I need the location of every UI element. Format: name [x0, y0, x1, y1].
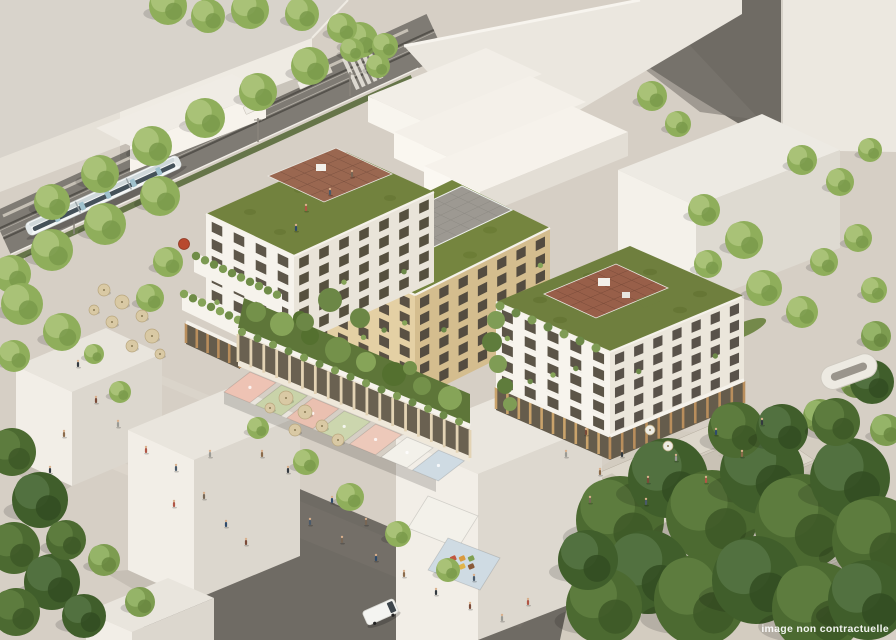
architectural-aerial-rendering: image non contractuelle [0, 0, 896, 640]
tree [0, 283, 43, 325]
aerial-render-canvas: image non contractuelle [0, 0, 896, 640]
watermark-caption: image non contractuelle [761, 623, 889, 635]
